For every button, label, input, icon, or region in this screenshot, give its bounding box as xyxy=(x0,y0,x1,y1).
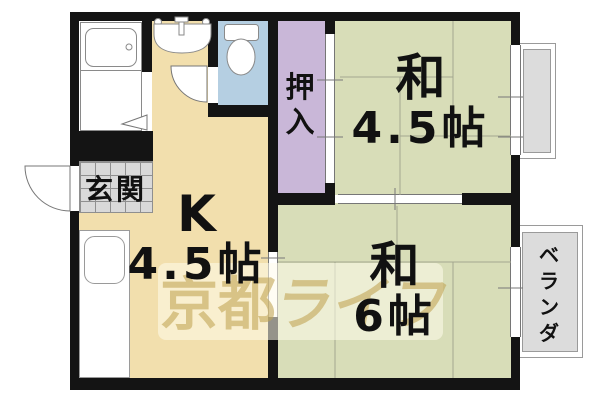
floor-plan: 京都ライフ 玄関 K 4.5帖 押入 和 4.5帖 和 6帖 ベランダ xyxy=(0,0,600,400)
room-45-name: 和 xyxy=(330,52,511,104)
room-45-label: 和 4.5帖 xyxy=(330,52,511,154)
room-6-size: 6帖 xyxy=(278,292,511,342)
bathroom-folding-door xyxy=(122,115,147,130)
bathtub-icon xyxy=(81,23,142,131)
room-6-label: 和 6帖 xyxy=(278,240,511,342)
kitchen-letter: K xyxy=(109,188,284,240)
balcony-label: ベランダ xyxy=(538,242,560,346)
kitchen-label: K 4.5帖 xyxy=(109,188,284,290)
room-6-name: 和 xyxy=(278,240,511,292)
kitchen-size: 4.5帖 xyxy=(109,240,284,290)
toilet-icon xyxy=(225,25,259,76)
closet-label: 押入 xyxy=(284,70,316,140)
toilet-door-arc xyxy=(171,66,207,102)
entrance-door-arc xyxy=(25,166,70,211)
room-45-size: 4.5帖 xyxy=(330,104,511,154)
washbasin-icon xyxy=(154,17,211,53)
